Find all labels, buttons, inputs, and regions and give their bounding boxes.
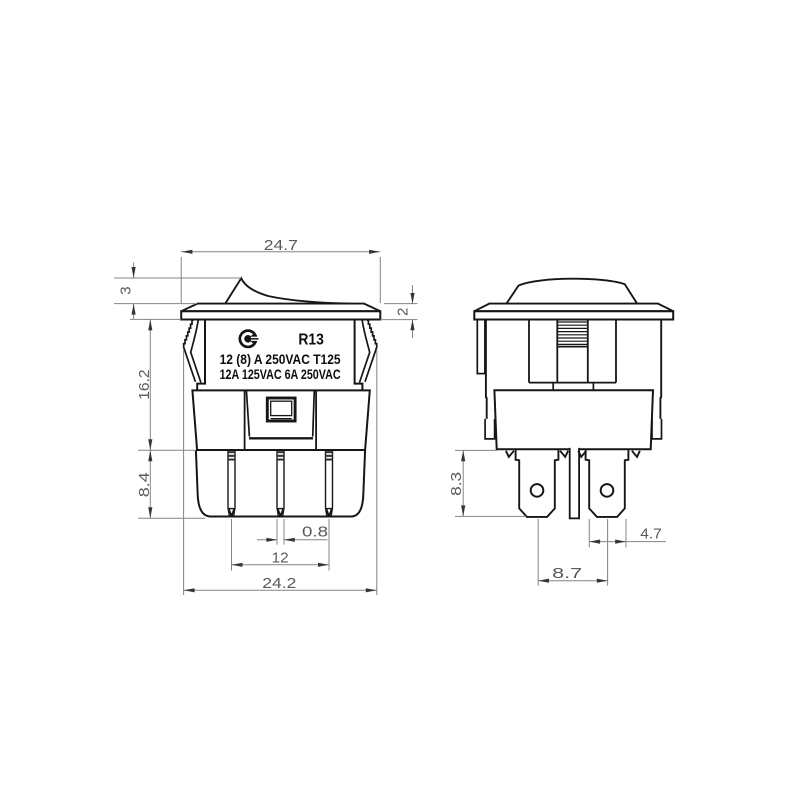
svg-text:24.2: 24.2 bbox=[262, 575, 296, 592]
svg-text:3: 3 bbox=[117, 286, 134, 294]
svg-text:8.7: 8.7 bbox=[552, 565, 582, 582]
svg-text:12 (8) A 250VAC T125: 12 (8) A 250VAC T125 bbox=[220, 351, 341, 367]
svg-text:12: 12 bbox=[272, 550, 289, 567]
svg-text:R13: R13 bbox=[298, 331, 324, 348]
svg-text:8.3: 8.3 bbox=[448, 472, 465, 496]
svg-text:2: 2 bbox=[395, 308, 412, 316]
svg-text:12A 125VAC 6A 250VAC: 12A 125VAC 6A 250VAC bbox=[220, 366, 341, 382]
svg-text:16.2: 16.2 bbox=[136, 369, 153, 400]
svg-text:24.7: 24.7 bbox=[264, 237, 298, 254]
svg-text:0.8: 0.8 bbox=[302, 524, 328, 541]
svg-text:4.7: 4.7 bbox=[640, 525, 662, 542]
svg-text:8.4: 8.4 bbox=[136, 472, 153, 497]
